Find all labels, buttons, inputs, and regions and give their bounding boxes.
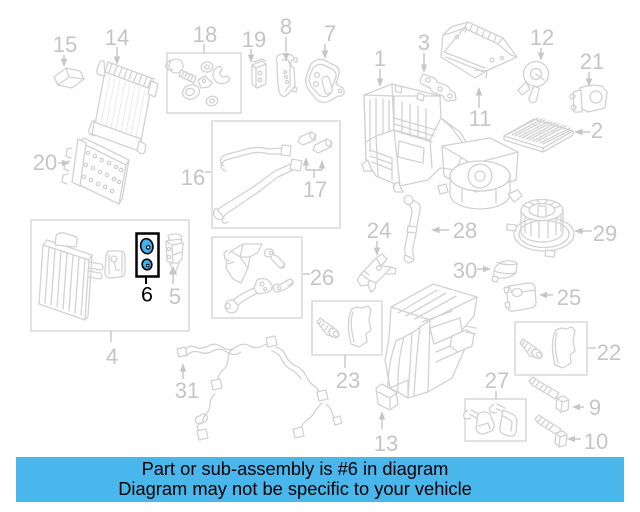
- svg-text:Diagram may not be specific to: Diagram may not be specific to your vehi…: [118, 478, 472, 499]
- svg-text:26: 26: [310, 265, 334, 290]
- svg-text:29: 29: [593, 221, 617, 246]
- svg-text:12: 12: [530, 25, 554, 50]
- svg-text:27: 27: [485, 368, 509, 393]
- svg-text:1: 1: [374, 46, 386, 71]
- svg-text:9: 9: [589, 395, 601, 420]
- svg-text:Part or sub-assembly is #6 in: Part or sub-assembly is #6 in diagram: [142, 458, 449, 479]
- svg-text:21: 21: [580, 49, 604, 74]
- svg-text:10: 10: [584, 429, 608, 454]
- svg-text:25: 25: [557, 285, 581, 310]
- svg-text:20: 20: [33, 150, 57, 175]
- svg-text:16: 16: [181, 165, 205, 190]
- svg-text:14: 14: [105, 25, 129, 50]
- svg-text:11: 11: [469, 106, 492, 131]
- svg-text:31: 31: [175, 378, 199, 403]
- svg-text:7: 7: [324, 21, 336, 46]
- svg-text:5: 5: [169, 284, 181, 309]
- svg-text:8: 8: [280, 14, 292, 39]
- svg-text:22: 22: [597, 340, 621, 365]
- svg-text:2: 2: [591, 118, 603, 143]
- svg-text:30: 30: [453, 258, 477, 283]
- svg-text:17: 17: [303, 177, 327, 202]
- svg-text:23: 23: [336, 368, 360, 393]
- svg-text:28: 28: [453, 218, 477, 243]
- svg-text:15: 15: [53, 32, 77, 57]
- svg-text:4: 4: [106, 344, 118, 369]
- svg-text:3: 3: [418, 30, 430, 55]
- svg-text:13: 13: [374, 431, 398, 456]
- svg-text:19: 19: [242, 27, 266, 52]
- svg-text:24: 24: [367, 218, 391, 243]
- svg-text:6: 6: [141, 283, 153, 307]
- svg-text:18: 18: [193, 22, 217, 47]
